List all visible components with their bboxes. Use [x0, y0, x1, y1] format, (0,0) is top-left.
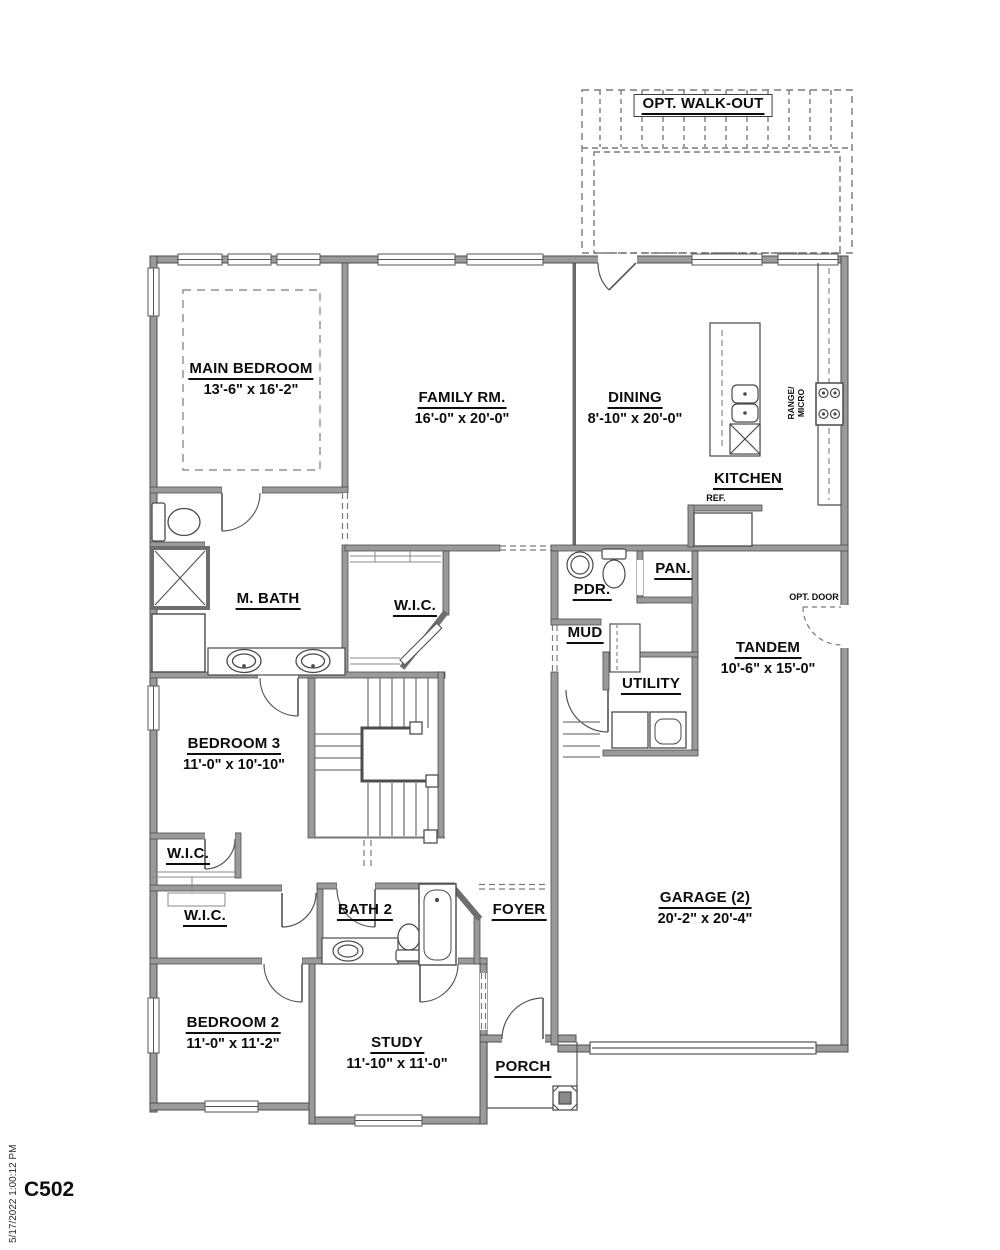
- refrigerator: [694, 513, 752, 546]
- room-label-mud: MUD: [567, 624, 604, 644]
- bath2-fixtures: [322, 884, 456, 965]
- room-label-bedroom2: BEDROOM 2 11'-0" x 11'-2": [186, 1014, 281, 1055]
- wic-door-leaf: [400, 623, 442, 665]
- toilet-bowl: [398, 924, 420, 950]
- mud-steps: [563, 722, 600, 757]
- garage-door: [590, 1042, 816, 1054]
- room-label-opt-walkout: OPT. WALK-OUT: [634, 94, 773, 117]
- room-label-bath2: BATH 2: [337, 901, 393, 921]
- room-label-bedroom3: BEDROOM 3 11'-0" x 10'-10": [183, 735, 285, 776]
- room-label-dining: DINING 8'-10" x 20'-0": [588, 389, 683, 430]
- room-label-wic-upper: W.I.C.: [166, 845, 210, 865]
- room-label-wic-main: W.I.C.: [393, 597, 437, 617]
- toilet-tank: [152, 503, 165, 541]
- room-label-m-bath: M. BATH: [236, 590, 301, 610]
- room-label-utility: UTILITY: [621, 675, 681, 695]
- toilet-bowl: [168, 509, 200, 536]
- master-bath-fixtures: [152, 503, 345, 675]
- washer: [612, 712, 648, 748]
- stairs: [315, 678, 445, 843]
- ref-annotation: REF.: [706, 493, 726, 503]
- room-label-study: STUDY 11'-10" x 11'-0": [346, 1034, 447, 1075]
- room-label-kitchen: KITCHEN: [713, 470, 783, 490]
- room-label-foyer: FOYER: [492, 901, 547, 921]
- opt-door-annotation: OPT. DOOR: [789, 592, 839, 602]
- room-label-pdr: PDR.: [573, 581, 612, 601]
- room-label-family-rm: FAMILY RM. 16'-0" x 20'-0": [415, 389, 510, 430]
- utility-fixtures: [612, 712, 686, 748]
- room-label-tandem: TANDEM 10'-6" x 15'-0": [721, 639, 816, 680]
- room-label-porch: PORCH: [494, 1058, 551, 1078]
- room-label-garage: GARAGE (2) 20'-2" x 20'-4": [658, 889, 753, 930]
- room-label-pan: PAN.: [654, 560, 692, 580]
- stair-railing: [362, 728, 432, 781]
- linen-closet: [152, 614, 205, 672]
- room-label-main-bedroom: MAIN BEDROOM 13'-6" x 16'-2": [188, 360, 313, 401]
- sheet-number: C502: [24, 1178, 74, 1202]
- kitchen-fixtures: [694, 263, 843, 546]
- room-label-wic-lower: W.I.C.: [183, 907, 227, 927]
- range-micro-annotation: RANGE/ MICRO: [787, 386, 807, 419]
- mud-bench: [610, 624, 640, 672]
- toilet-tank: [602, 549, 626, 559]
- plot-timestamp: 5/17/2022 1:00:12 PM: [8, 1145, 19, 1243]
- toilet-tank: [396, 950, 422, 961]
- floor-plan: OPT. WALK-OUT MAIN BEDROOM 13'-6" x 16'-…: [0, 0, 1000, 1250]
